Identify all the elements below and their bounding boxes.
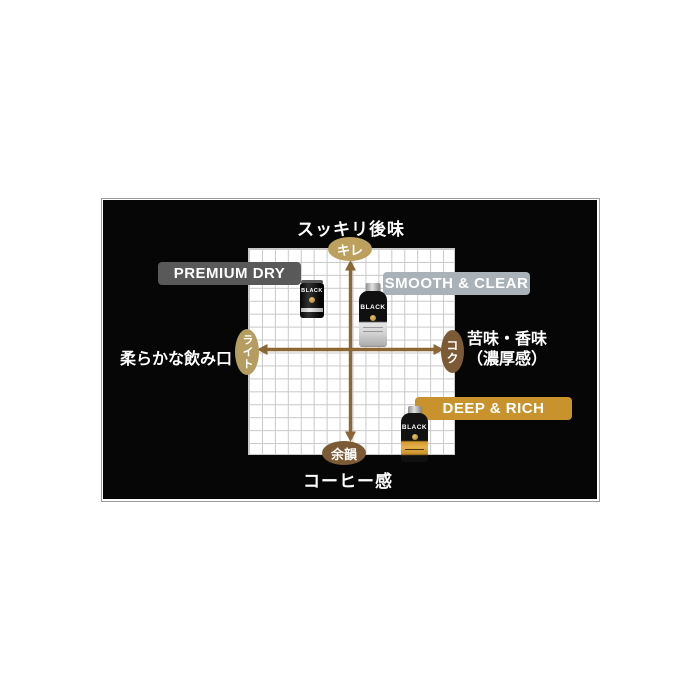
bottle-deep-rich-emblem-icon <box>412 434 418 440</box>
bottle-smooth-clear: BLACK <box>359 283 387 347</box>
axis-label-right-line2: （濃厚感） <box>467 350 597 370</box>
bottle-smooth-clear-emblem-icon <box>370 315 376 321</box>
axis-label-left: 柔らかな飲み口 <box>112 345 232 369</box>
product-badge-smooth-clear: SMOOTH & CLEAR <box>383 272 530 295</box>
node-koku: コク <box>441 330 464 373</box>
bottle-smooth-clear-text-line <box>363 327 383 328</box>
bottle-deep-rich-brand-text: BLACK <box>401 424 428 431</box>
node-yoin-label: 余韻 <box>331 444 357 463</box>
node-kire-label: キレ <box>337 240 363 259</box>
axis-label-bottom: コーヒー感 <box>248 467 448 492</box>
bottle-smooth-clear-brand-text: BLACK <box>359 304 387 311</box>
node-kire: キレ <box>328 237 372 261</box>
bottle-deep-rich: BLACK <box>401 406 428 462</box>
product-badge-deep-rich: DEEP & RICH <box>415 397 572 420</box>
product-badge-smooth-clear-label: SMOOTH & CLEAR <box>385 275 529 292</box>
can-premium-dry-emblem-icon <box>309 297 315 303</box>
can-premium-dry-brand-text: BLACK <box>300 288 324 294</box>
product-badge-premium-dry: PREMIUM DRY <box>158 262 301 285</box>
bottle-smooth-clear-text-line2 <box>363 331 383 332</box>
axis-label-right-line1: 苦味・香味 <box>467 330 597 350</box>
product-badge-deep-rich-label: DEEP & RICH <box>443 400 545 417</box>
node-koku-label: コク <box>444 339 461 365</box>
product-badge-premium-dry-label: PREMIUM DRY <box>174 265 286 282</box>
taste-positioning-figure: スッキリ後味 コーヒー感 柔らかな飲み口 苦味・香味 （濃厚感） キレ 余韻 ラ… <box>0 0 700 700</box>
axis-label-right: 苦味・香味 （濃厚感） <box>467 330 597 370</box>
node-light: ライト <box>235 329 259 375</box>
node-yoin: 余韻 <box>322 441 366 465</box>
bottle-deep-rich-text-line <box>405 449 424 450</box>
can-premium-dry: BLACK <box>300 280 324 318</box>
node-light-label: ライト <box>239 334 255 370</box>
can-premium-dry-lower-band <box>301 308 323 312</box>
